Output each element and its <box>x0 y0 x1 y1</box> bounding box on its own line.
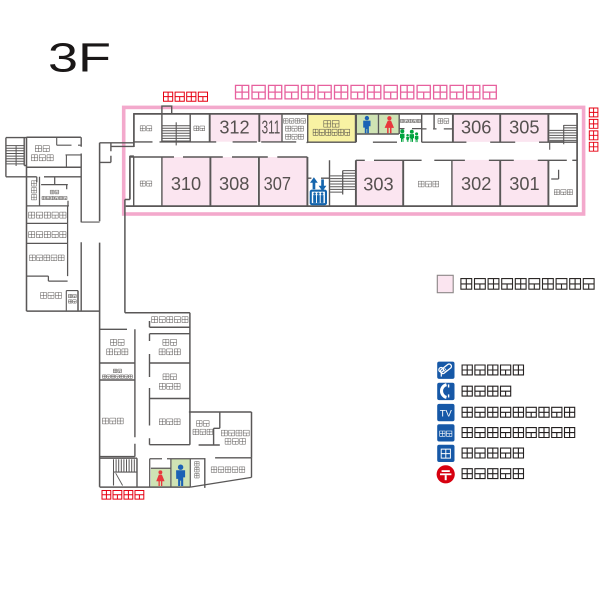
svg-text:305: 305 <box>509 118 539 138</box>
svg-text:308: 308 <box>219 174 249 194</box>
svg-text:3F: 3F <box>48 35 111 81</box>
svg-text:TV: TV <box>440 409 453 420</box>
svg-text:302: 302 <box>461 174 491 194</box>
svg-text:301: 301 <box>509 174 539 194</box>
svg-text:303: 303 <box>363 175 393 195</box>
svg-text:312: 312 <box>219 118 249 138</box>
svg-text:307: 307 <box>264 173 291 194</box>
svg-text:306: 306 <box>461 118 491 138</box>
svg-text:310: 310 <box>171 174 201 194</box>
svg-text:311: 311 <box>262 118 281 138</box>
